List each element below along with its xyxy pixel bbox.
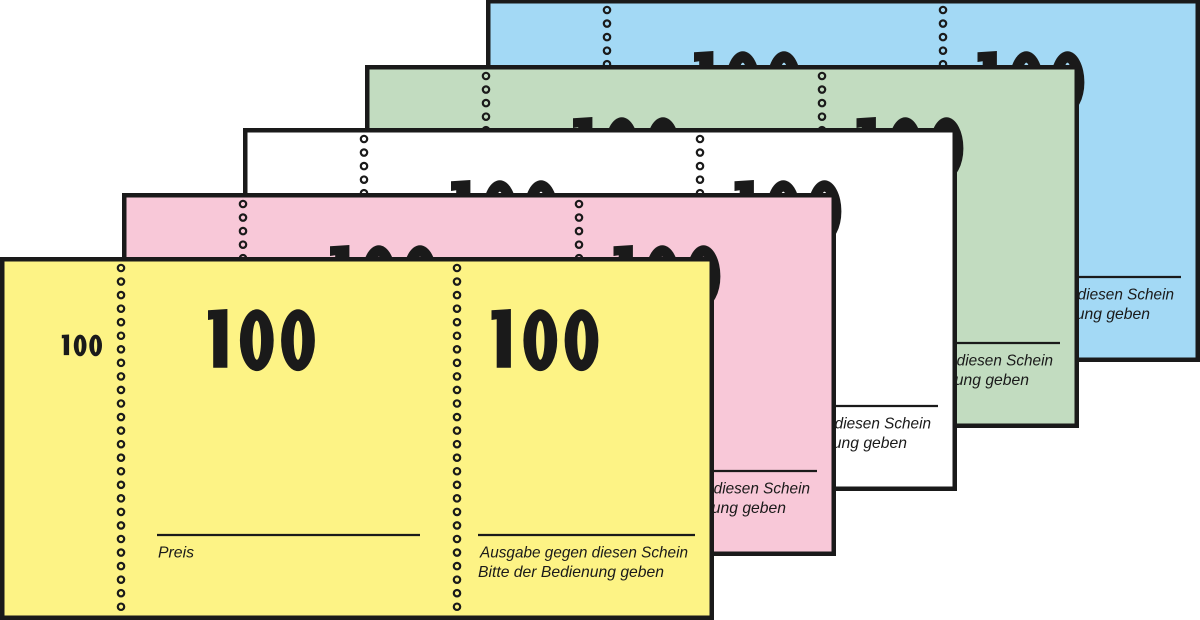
svg-text:Bitte der Bedienung geben: Bitte der Bedienung geben	[478, 564, 664, 581]
svg-text:Preis: Preis	[158, 545, 194, 562]
svg-text:Ausgabe gegen diesen Schein: Ausgabe gegen diesen Schein	[479, 545, 688, 562]
